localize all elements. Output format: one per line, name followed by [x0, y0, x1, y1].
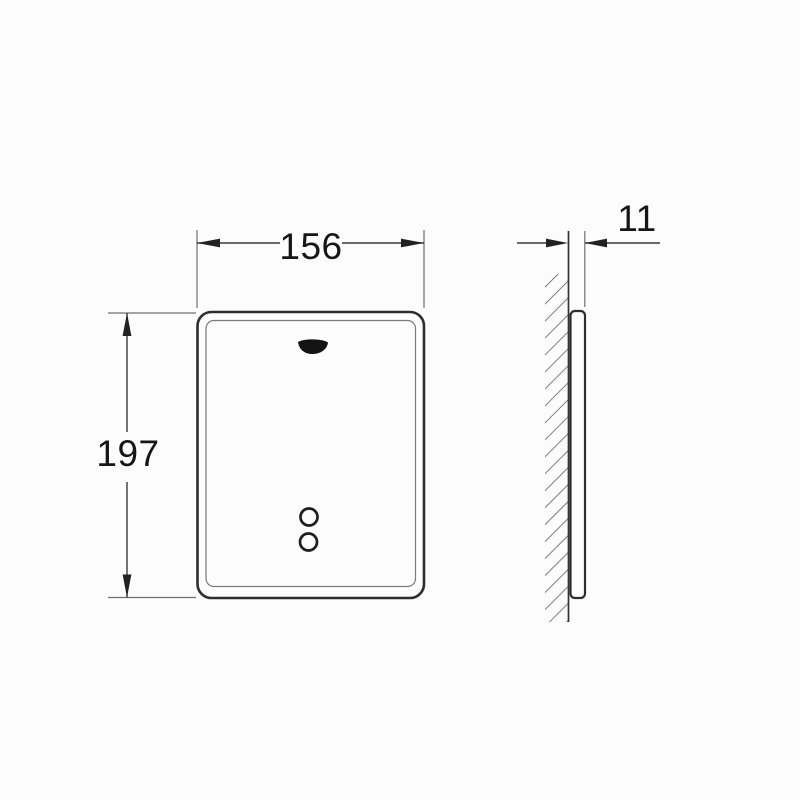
arrowhead-up-icon — [123, 313, 132, 336]
front-width-label: 156 — [279, 226, 342, 267]
thickness-dimension: 11 — [517, 198, 660, 247]
technical-drawing: 156 197 11 — [0, 0, 800, 800]
front-height-label: 197 — [96, 433, 159, 474]
side-plate-profile — [571, 311, 586, 598]
arrowhead-left-icon — [197, 239, 220, 248]
height-dimension: 197 — [96, 313, 196, 598]
front-view — [198, 312, 425, 598]
width-dimension: 156 — [197, 226, 424, 308]
arrowhead-inward-left-icon — [546, 239, 568, 248]
arrowhead-inward-right-icon — [585, 239, 607, 248]
dimension-drawing-svg: 156 197 11 — [0, 0, 800, 800]
arrowhead-down-icon — [123, 575, 132, 598]
wall-hatching — [545, 274, 569, 622]
side-thickness-label: 11 — [617, 198, 656, 239]
front-plate-outline — [198, 312, 425, 598]
arrowhead-right-icon — [401, 239, 424, 248]
side-view — [545, 231, 585, 622]
